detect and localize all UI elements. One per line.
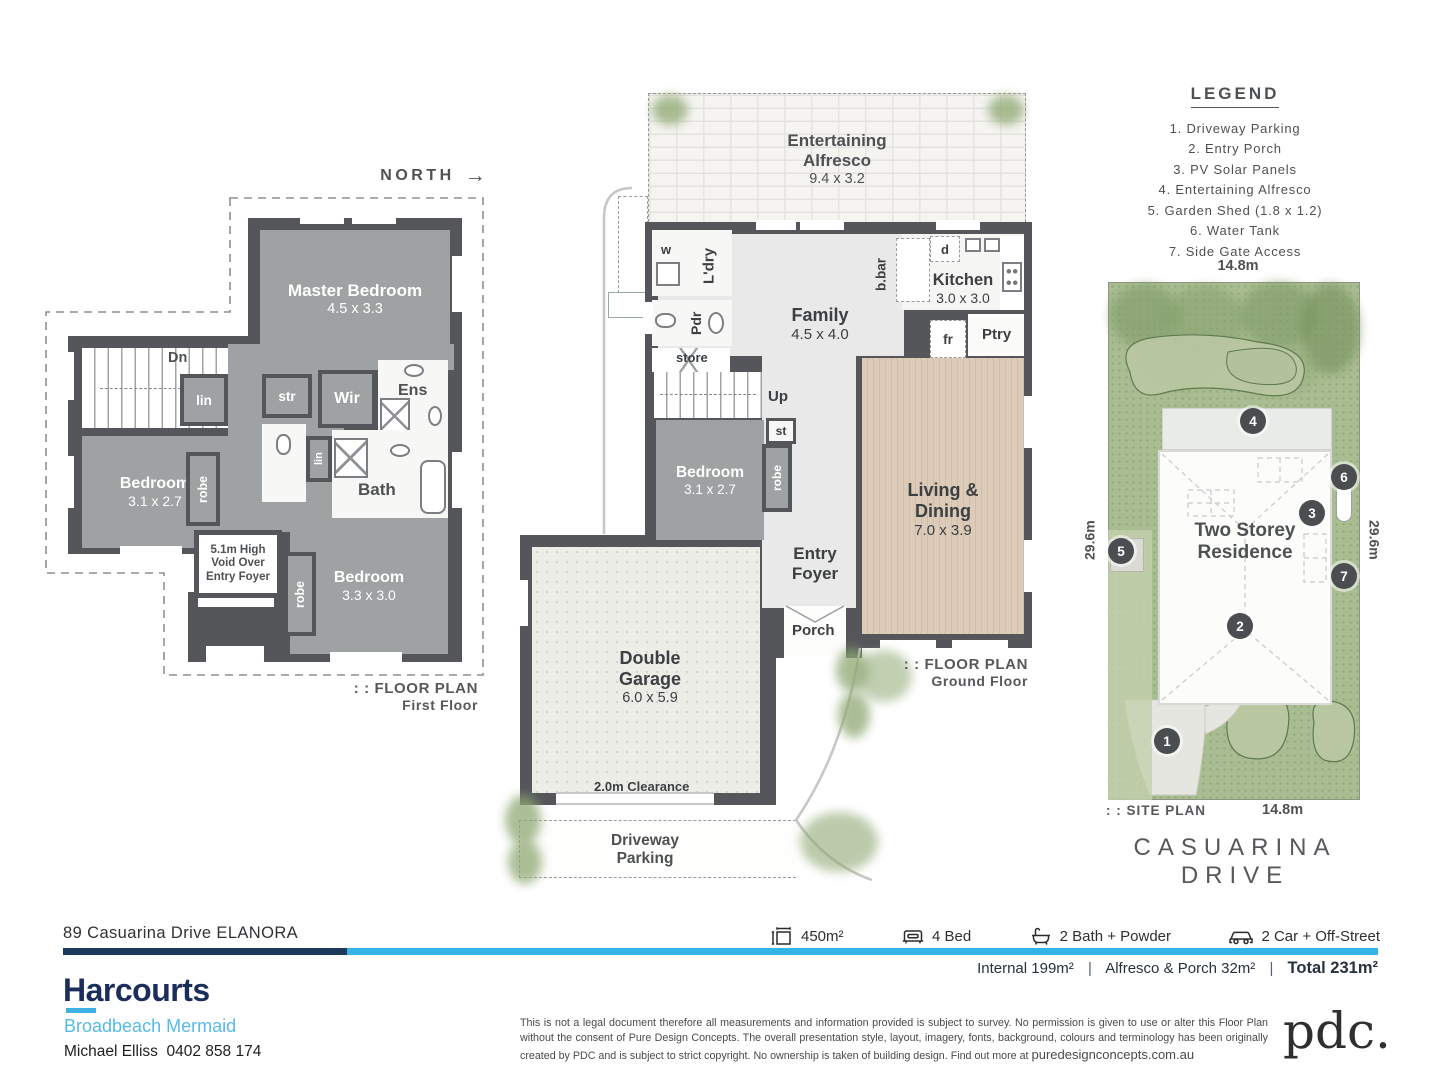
site-marker-7: 7 (1331, 563, 1357, 589)
fridge-space: fr (930, 320, 966, 358)
closet-label: robe (770, 465, 784, 491)
room-label: Master Bedroom (288, 281, 422, 301)
room-label: Dining (915, 501, 971, 522)
window (352, 214, 396, 224)
site-marker-3: 3 (1299, 500, 1325, 526)
separator: | (1259, 960, 1283, 977)
areas-line: Internal 199m² | Alfresco & Porch 32m² |… (700, 959, 1378, 978)
window (452, 452, 462, 508)
window (952, 640, 1008, 650)
room-label: Foyer (792, 564, 838, 584)
water-tank (1336, 488, 1352, 522)
window (800, 220, 844, 230)
closet-linen-2: lin (306, 436, 332, 482)
property-address: 89 Casuarina Drive ELANORA (63, 924, 298, 943)
room-dim: 3.0 x 3.0 (936, 290, 990, 306)
site-marker-2: 2 (1227, 613, 1253, 639)
palm-icon (800, 812, 878, 872)
room-label: Bedroom (676, 464, 744, 482)
pantry-label: Ptry (982, 326, 1011, 343)
room-dim: 7.0 x 3.9 (914, 522, 972, 539)
dishwasher: d (930, 236, 960, 262)
window (643, 302, 653, 334)
plant-icon (838, 692, 870, 738)
room-label: Living & (908, 480, 979, 501)
legend-item: 2. Entry Porch (1188, 141, 1282, 156)
window (64, 456, 74, 508)
area-alfresco: Alfresco & Porch 32m² (1105, 960, 1255, 977)
closet-label: robe (196, 475, 210, 502)
void-line: Entry Foyer (206, 571, 270, 585)
stat-land-size: 450m² (770, 926, 844, 946)
shower-icon (334, 438, 368, 478)
marker-number: 4 (1249, 414, 1257, 429)
room-dim: 4.5 x 4.0 (791, 326, 849, 343)
plant-icon (508, 840, 542, 884)
first-floor-plan-tag: : : FLOOR PLAN First Floor (330, 680, 478, 713)
closet-label: st (776, 424, 787, 438)
marker-number: 2 (1236, 619, 1244, 634)
brand-logo: Harcourts (63, 972, 210, 1009)
window (756, 220, 796, 230)
driveway-label-block: Driveway Parking (580, 828, 710, 872)
room-bedroom-gf: Bedroom 3.1 x 2.7 (656, 420, 764, 540)
room-label: Bedroom (120, 475, 190, 493)
window (64, 352, 74, 400)
room-dim: 4.5 x 3.3 (327, 301, 383, 317)
room-wir: Wir (318, 370, 376, 428)
plan-floor-line: First Floor (330, 697, 478, 713)
bath-icon (1029, 926, 1053, 946)
room-dim: 6.0 x 5.9 (622, 690, 678, 706)
stat-label: 4 Bed (932, 928, 971, 945)
room-label: Garage (619, 669, 681, 690)
room-dim: 3.3 x 3.0 (342, 587, 396, 603)
window (300, 214, 344, 224)
stat-label: 2 Car + Off-Street (1261, 928, 1380, 945)
stat-label: 2 Bath + Powder (1060, 928, 1171, 945)
basin-icon (708, 312, 724, 334)
stat-label: 450m² (801, 928, 844, 945)
closet-robe-gf: robe (762, 444, 792, 512)
closet-robe-1: robe (186, 452, 220, 526)
void-line: 5.1m High (211, 544, 266, 558)
staircase-up (654, 372, 762, 418)
closet-label: robe (293, 580, 307, 607)
room-label: Entry (793, 544, 836, 564)
room-label: Family (791, 305, 848, 326)
room-label: Bedroom (334, 569, 404, 587)
legend-item: 3. PV Solar Panels (1173, 162, 1297, 177)
shower-icon (380, 398, 410, 434)
street-name: CASUARINA DRIVE (1075, 834, 1395, 891)
closet-label: lin (313, 453, 325, 466)
residence-label: Residence (1197, 542, 1292, 564)
bed-icon (901, 926, 925, 946)
driveway-label: Parking (617, 850, 674, 868)
washer-label: w (661, 242, 671, 257)
legend-title: LEGEND (1191, 84, 1280, 108)
entry-foyer: Entry Foyer (772, 534, 858, 594)
marker-number: 5 (1117, 544, 1125, 559)
divider-blue (347, 948, 1378, 955)
toilet-icon (276, 434, 291, 455)
plan-tag-line: : : FLOOR PLAN (330, 680, 478, 697)
closet-linen: lin (180, 374, 228, 426)
window (330, 652, 402, 662)
plan-floor-line: Ground Floor (900, 673, 1028, 689)
legend-item: 1. Driveway Parking (1170, 121, 1301, 136)
site-dim-left: 29.6m (1080, 500, 1100, 580)
site-plan-tag: : : SITE PLAN (1106, 803, 1206, 818)
roof-lines (1158, 450, 1332, 705)
disclaimer: This is not a legal document therefore a… (520, 1016, 1268, 1065)
toilet-icon (404, 364, 424, 377)
sink-icon (965, 238, 981, 252)
balcony-opening-2 (206, 646, 264, 662)
marker-number: 6 (1340, 470, 1348, 485)
ground-floor-plan-tag: : : FLOOR PLAN Ground Floor (900, 656, 1028, 689)
room-dim: 3.1 x 2.7 (128, 493, 182, 509)
legend-item: 6. Water Tank (1190, 223, 1280, 238)
marker-number: 1 (1163, 734, 1171, 749)
room-label: Kitchen (933, 271, 994, 290)
closet-robe-2: robe (284, 552, 316, 636)
separator: | (1078, 960, 1102, 977)
stats-row: 450m² 4 Bed 2 Bath + Powder 2 Car + Off-… (770, 924, 1380, 948)
sink-icon (984, 238, 1000, 252)
marker-number: 7 (1340, 569, 1348, 584)
agent-contact: Michael Elliss 0402 858 174 (64, 1043, 261, 1061)
garage-door (556, 792, 714, 805)
room-alfresco: Entertaining Alfresco 9.4 x 3.2 (648, 93, 1026, 227)
floorplan-document: NORTH → Master Bedroom 4.5 x 3.3 Dn lin … (0, 0, 1441, 1080)
area-internal: Internal 199m² (977, 960, 1074, 977)
meter-box (608, 292, 646, 318)
site-marker-4: 4 (1240, 408, 1266, 434)
stair-dn-label: Dn (168, 350, 187, 367)
void-line: Void Over (211, 557, 264, 571)
site-marker-5: 5 (1108, 538, 1134, 564)
room-label: Wir (334, 390, 360, 408)
pdc-logo: pdc. (1283, 1002, 1391, 1060)
marker-number: 3 (1308, 506, 1316, 521)
area-total: Total 231m² (1288, 959, 1378, 977)
room-label: Bath (358, 480, 396, 500)
brand-logo-accent (66, 1008, 96, 1013)
stat-baths: 2 Bath + Powder (1029, 926, 1171, 946)
bathtub-icon (420, 460, 446, 514)
window (936, 220, 980, 230)
plant-icon (505, 795, 541, 845)
site-dim-bottom: 14.8m (1262, 802, 1303, 819)
window (518, 580, 528, 626)
dishwasher-label: d (941, 242, 949, 257)
plan-tag-line: : : FLOOR PLAN (900, 656, 1028, 673)
room-garage: Double Garage 6.0 x 5.9 (572, 648, 728, 706)
land-size-icon (770, 926, 794, 946)
room-label: Double (620, 648, 681, 669)
room-dim: 9.4 x 3.2 (809, 171, 865, 188)
stair-arrow (660, 394, 756, 395)
residence-label-block: Two Storey Residence (1168, 518, 1322, 566)
void-note: 5.1m High Void Over Entry Foyer (194, 530, 282, 598)
divider-navy (63, 948, 347, 955)
room-label: Entertaining (787, 131, 886, 151)
site-marker-1: 1 (1154, 728, 1180, 754)
room-label: Alfresco (803, 151, 871, 171)
car-icon (1228, 926, 1254, 946)
closet-st: st (766, 418, 796, 444)
toilet-icon (655, 313, 676, 328)
closet-label: str (278, 389, 295, 404)
stat-beds: 4 Bed (901, 926, 971, 946)
legend-item: 4. Entertaining Alfresco (1159, 182, 1312, 197)
legend-item: 7. Side Gate Access (1169, 244, 1301, 259)
closet-label: lin (196, 393, 212, 408)
site-dim-right: 29.6m (1364, 500, 1384, 580)
stair-up-label: Up (768, 388, 788, 405)
window (1024, 396, 1034, 448)
site-dim-top: 14.8m (1208, 258, 1268, 275)
balcony-opening (198, 598, 274, 607)
washer-icon (656, 262, 680, 286)
fridge-label: fr (943, 332, 953, 347)
room-kitchen: Kitchen 3.0 x 3.0 (920, 266, 1006, 310)
basin-icon (390, 444, 410, 457)
window (452, 256, 462, 312)
brand-office: Broadbeach Mermaid (64, 1016, 236, 1037)
room-label-laundry: L'dry (698, 238, 720, 294)
legend: LEGEND 1. Driveway Parking 2. Entry Porc… (1124, 84, 1346, 262)
plant-icon (652, 95, 688, 125)
stat-cars: 2 Car + Off-Street (1228, 926, 1380, 946)
closet-storage: str (262, 374, 312, 418)
disclaimer-url: puredesignconcepts.com.au (1031, 1047, 1194, 1062)
residence-label: Two Storey (1195, 520, 1296, 542)
site-marker-6: 6 (1331, 464, 1357, 490)
window (120, 546, 182, 556)
breakfast-bar-label: b.bar (872, 240, 890, 308)
window (1024, 540, 1034, 592)
driveway-label: Driveway (611, 832, 679, 850)
store-label: store (676, 350, 708, 365)
legend-item: 5. Garden Shed (1.8 x 1.2) (1148, 203, 1323, 218)
room-dim: 3.1 x 2.7 (684, 482, 736, 497)
room-label-powder: Pdr (686, 300, 706, 346)
living-label-block: Living & Dining 7.0 x 3.9 (872, 470, 1014, 548)
plant-icon (988, 95, 1024, 125)
basin-icon (428, 406, 442, 426)
room-family: Family 4.5 x 4.0 (760, 292, 880, 356)
